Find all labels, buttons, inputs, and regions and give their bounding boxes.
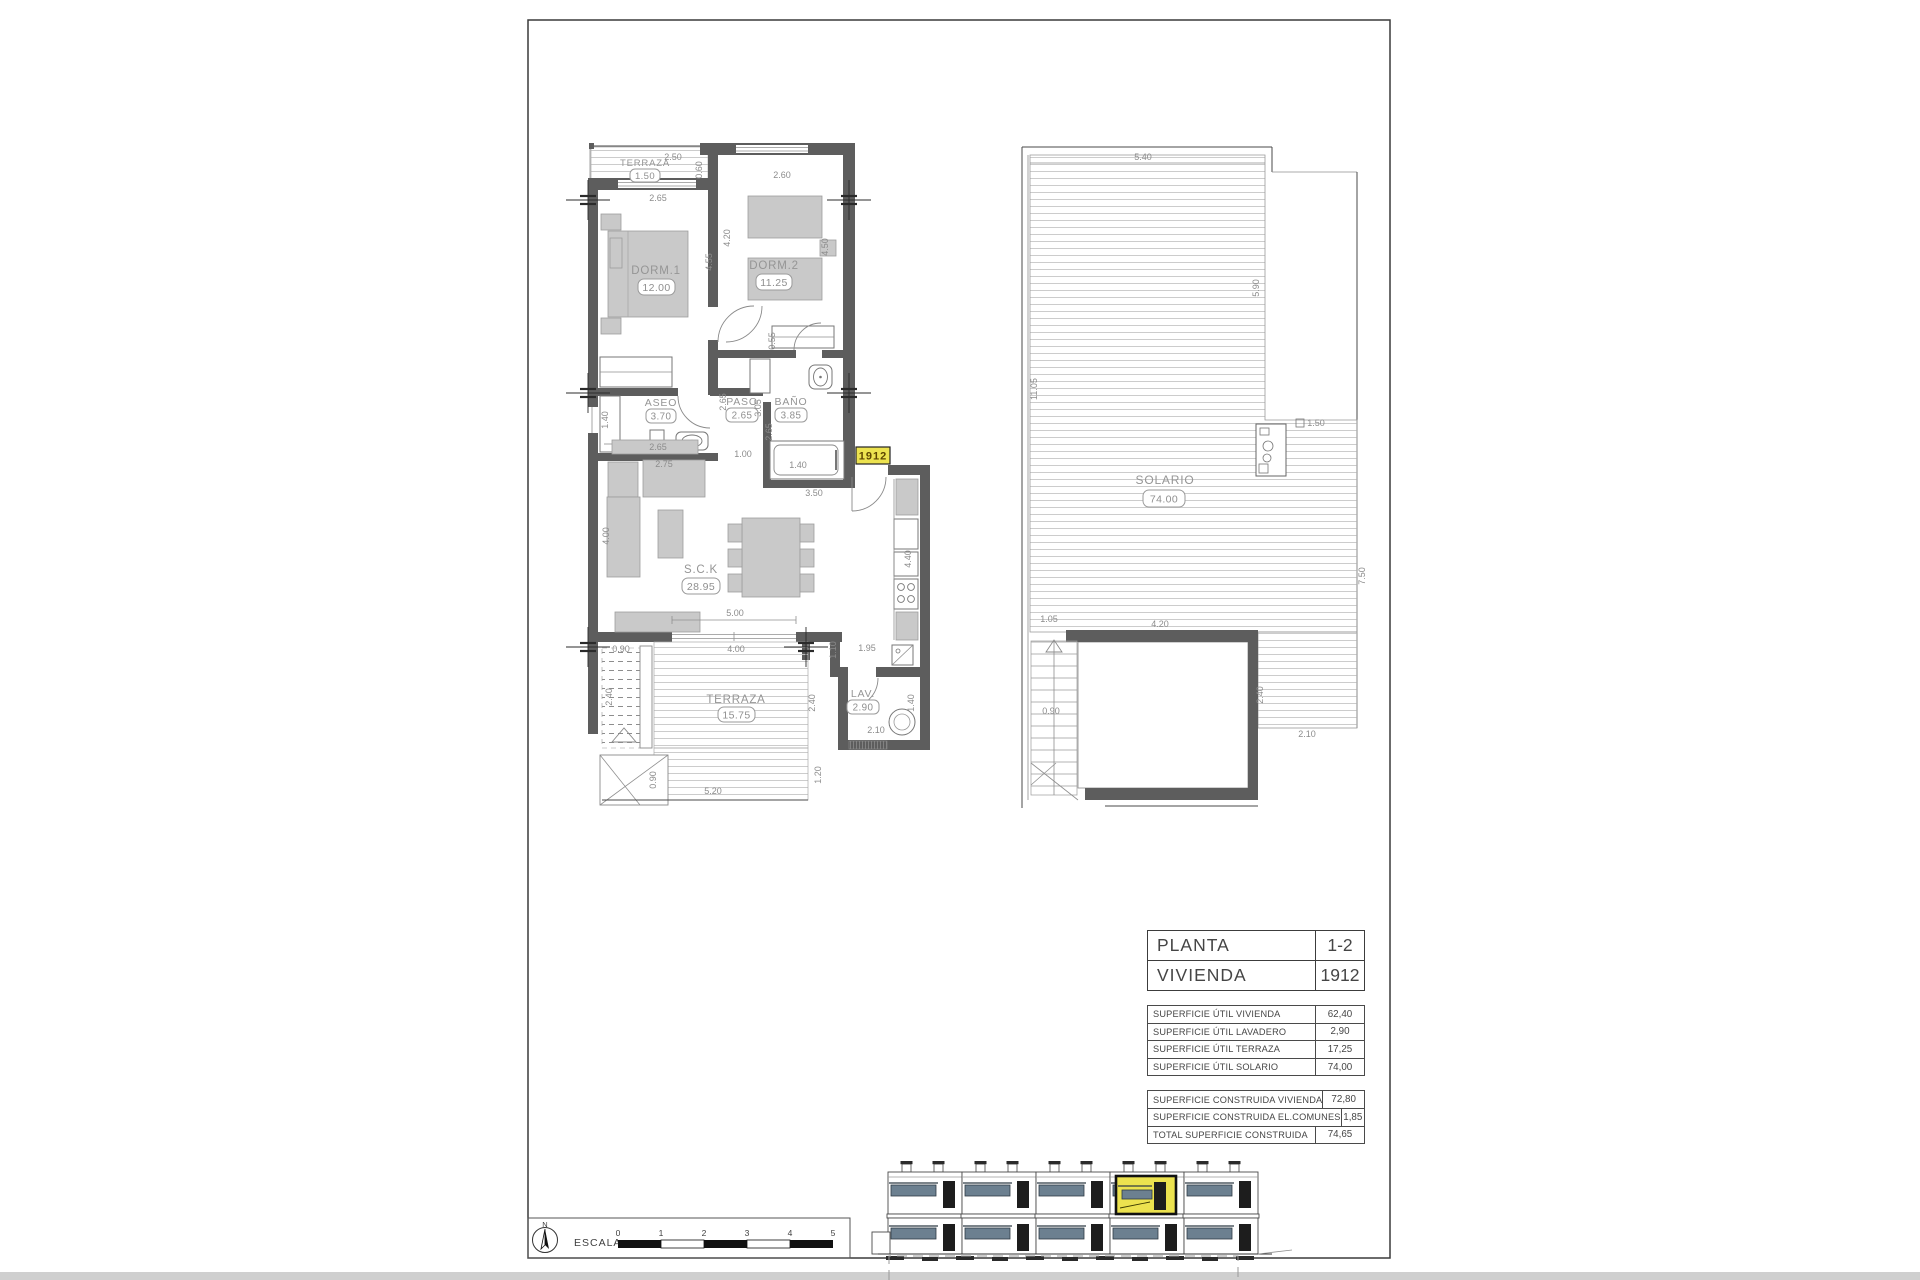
shelf-bano <box>750 359 770 393</box>
table-row: SUPERFICIE ÚTIL LAVADERO 2,90 <box>1148 1023 1364 1041</box>
svg-text:1.50: 1.50 <box>1307 418 1325 428</box>
svg-text:2.40: 2.40 <box>604 688 614 706</box>
room-area: 11.25 <box>760 277 788 289</box>
svg-text:3.05: 3.05 <box>753 399 763 417</box>
door-arc <box>726 306 762 342</box>
svg-text:1.00: 1.00 <box>734 449 752 459</box>
svg-text:4.40: 4.40 <box>903 550 913 568</box>
room-label: SOLARIO <box>1136 473 1195 487</box>
elevation-module <box>1183 1172 1259 1254</box>
svg-text:5.40: 5.40 <box>1134 152 1152 162</box>
svg-text:0.60: 0.60 <box>694 161 704 179</box>
unit-badge-label: 1912 <box>859 451 887 463</box>
drawing-svg: 1912 TERRAZA 1.50 DORM.1 12.00 DORM.2 11… <box>0 0 1920 1280</box>
door-arc-entry <box>852 477 886 511</box>
svg-text:1.40: 1.40 <box>600 411 610 429</box>
sideboard <box>615 612 700 632</box>
terrace-bottom <box>600 642 808 805</box>
svg-text:1: 1 <box>659 1228 664 1238</box>
room-area: 2.90 <box>853 703 874 714</box>
svg-text:1.40: 1.40 <box>789 460 807 470</box>
svg-text:2.10: 2.10 <box>867 725 885 735</box>
elevation-module <box>1035 1172 1111 1254</box>
svg-text:2.50: 2.50 <box>664 152 682 162</box>
room-area: 3.85 <box>781 411 802 422</box>
svg-text:2.65: 2.65 <box>649 193 667 203</box>
svg-text:0.55: 0.55 <box>767 332 777 350</box>
plan-sheet: 1912 TERRAZA 1.50 DORM.1 12.00 DORM.2 11… <box>0 0 1920 1280</box>
room-label: ASEO <box>645 397 677 409</box>
svg-text:0.90: 0.90 <box>612 644 630 654</box>
table-row: TOTAL SUPERFICIE CONSTRUIDA 74,65 <box>1148 1126 1364 1144</box>
table-row: SUPERFICIE ÚTIL VIVIENDA 62,40 <box>1148 1006 1364 1023</box>
room-area: 3.70 <box>651 412 672 423</box>
room-label: DORM.2 <box>749 260 799 272</box>
room-area: 74.00 <box>1150 494 1178 506</box>
terrace-door <box>672 632 796 641</box>
room-label: BAÑO <box>775 395 808 408</box>
svg-text:2.65: 2.65 <box>718 393 728 411</box>
svg-text:1.05: 1.05 <box>1040 614 1058 624</box>
svg-text:2.75: 2.75 <box>655 459 673 469</box>
svg-text:5.00: 5.00 <box>726 608 744 618</box>
room-label: S.C.K <box>684 564 718 576</box>
table-row: VIVIENDA 1912 <box>1148 960 1364 990</box>
svg-text:0.90: 0.90 <box>1042 706 1060 716</box>
vivienda-label: VIVIENDA <box>1148 965 1315 986</box>
svg-text:2.40: 2.40 <box>807 694 817 712</box>
sofa-set <box>607 460 705 577</box>
svg-text:2.10: 2.10 <box>1298 729 1316 739</box>
room-area: 2.65 <box>732 411 753 422</box>
bbq-niche <box>1256 424 1286 476</box>
room-area: 12.00 <box>642 282 670 294</box>
room-label: TERRAZA <box>706 694 765 706</box>
dining-table <box>728 518 814 597</box>
svg-text:4.50: 4.50 <box>820 238 830 256</box>
svg-text:5: 5 <box>831 1228 836 1238</box>
laundry-sink <box>892 645 913 665</box>
svg-text:1.40: 1.40 <box>906 694 916 712</box>
bathtub <box>770 441 844 479</box>
unit-badge: 1912 <box>856 447 890 464</box>
stove <box>894 579 918 609</box>
svg-text:11.05: 11.05 <box>1029 378 1039 400</box>
svg-text:2.60: 2.60 <box>773 170 791 180</box>
svg-text:2.65: 2.65 <box>764 423 774 441</box>
svg-text:4: 4 <box>788 1228 793 1238</box>
svg-text:4.20: 4.20 <box>722 229 732 247</box>
svg-text:5.90: 5.90 <box>1251 279 1261 297</box>
svg-text:1.20: 1.20 <box>813 766 823 784</box>
svg-text:2.65: 2.65 <box>649 442 667 452</box>
paper-edge <box>0 1272 1920 1280</box>
room-area: 28.95 <box>687 581 715 593</box>
wall-section-marker <box>827 373 871 413</box>
svg-text:4.00: 4.00 <box>727 644 745 654</box>
wall-section-marker <box>827 180 871 220</box>
svg-text:4.55: 4.55 <box>704 253 714 271</box>
planta-vivienda-table: PLANTA 1-2 VIVIENDA 1912 <box>1147 930 1365 991</box>
solario-plan: SOLARIO 74.00 5.40 5.90 11.05 1.50 7.50 … <box>1022 147 1367 808</box>
scale-bar: N ESCALA : 0 1 2 3 4 5 <box>528 1218 850 1258</box>
svg-text:4.00: 4.00 <box>601 527 611 545</box>
planta-label: PLANTA <box>1148 935 1315 956</box>
highlighted-unit <box>1116 1176 1176 1214</box>
svg-text:1.10: 1.10 <box>828 641 838 659</box>
table-row: PLANTA 1-2 <box>1148 931 1364 960</box>
window-dorm2 <box>736 145 808 153</box>
table-row: SUPERFICIE ÚTIL TERRAZA 17,25 <box>1148 1040 1364 1058</box>
floor-plan: 1912 TERRAZA 1.50 DORM.1 12.00 DORM.2 11… <box>566 143 930 805</box>
solario-deck <box>1030 155 1357 632</box>
svg-text:3: 3 <box>745 1228 750 1238</box>
elevation-module <box>887 1172 963 1254</box>
superficie-util-table: SUPERFICIE ÚTIL VIVIENDA 62,40 SUPERFICI… <box>1147 1005 1365 1076</box>
svg-text:1.95: 1.95 <box>858 643 876 653</box>
vent-grille <box>849 741 887 749</box>
solario-stairs <box>1031 640 1078 800</box>
room-label: LAV. <box>851 688 875 700</box>
room-area: 15.75 <box>722 710 750 722</box>
scale-ticks: 0 1 2 3 4 5 <box>616 1228 836 1238</box>
svg-text:4.20: 4.20 <box>1151 619 1169 629</box>
room-label: TERRAZA <box>620 158 670 169</box>
svg-text:3.50: 3.50 <box>805 488 823 498</box>
info-table: PLANTA 1-2 VIVIENDA 1912 SUPERFICIE ÚTIL… <box>1147 930 1365 1144</box>
svg-text:0: 0 <box>616 1228 621 1238</box>
north-compass-icon: N <box>533 1220 558 1253</box>
washing-machine <box>889 709 915 735</box>
vivienda-value: 1912 <box>1315 961 1364 990</box>
door-arc <box>678 396 710 428</box>
window-aseo <box>588 407 598 433</box>
sink-bano <box>809 365 832 389</box>
svg-text:0.90: 0.90 <box>648 771 658 789</box>
door-arc <box>718 306 754 342</box>
elevation-module <box>961 1172 1037 1254</box>
svg-text:2.40: 2.40 <box>1255 686 1265 704</box>
room-area: 1.50 <box>635 171 655 182</box>
solario-deck-right <box>1258 632 1357 728</box>
svg-text:5.20: 5.20 <box>704 786 722 796</box>
courtyard <box>1078 642 1248 788</box>
scale-segments <box>618 1240 833 1248</box>
building-elevation <box>872 1161 1292 1280</box>
svg-text:2: 2 <box>702 1228 707 1238</box>
planta-value: 1-2 <box>1315 931 1364 960</box>
svg-text:7.50: 7.50 <box>1357 567 1367 585</box>
table-row: SUPERFICIE ÚTIL SOLARIO 74,00 <box>1148 1058 1364 1076</box>
table-row: SUPERFICIE CONSTRUIDA VIVIENDA 72,80 <box>1148 1091 1364 1108</box>
superficie-construida-table: SUPERFICIE CONSTRUIDA VIVIENDA 72,80 SUP… <box>1147 1090 1365 1144</box>
room-label: DORM.1 <box>631 265 681 277</box>
table-row: SUPERFICIE CONSTRUIDA EL.COMUNES 1,85 <box>1148 1108 1364 1126</box>
